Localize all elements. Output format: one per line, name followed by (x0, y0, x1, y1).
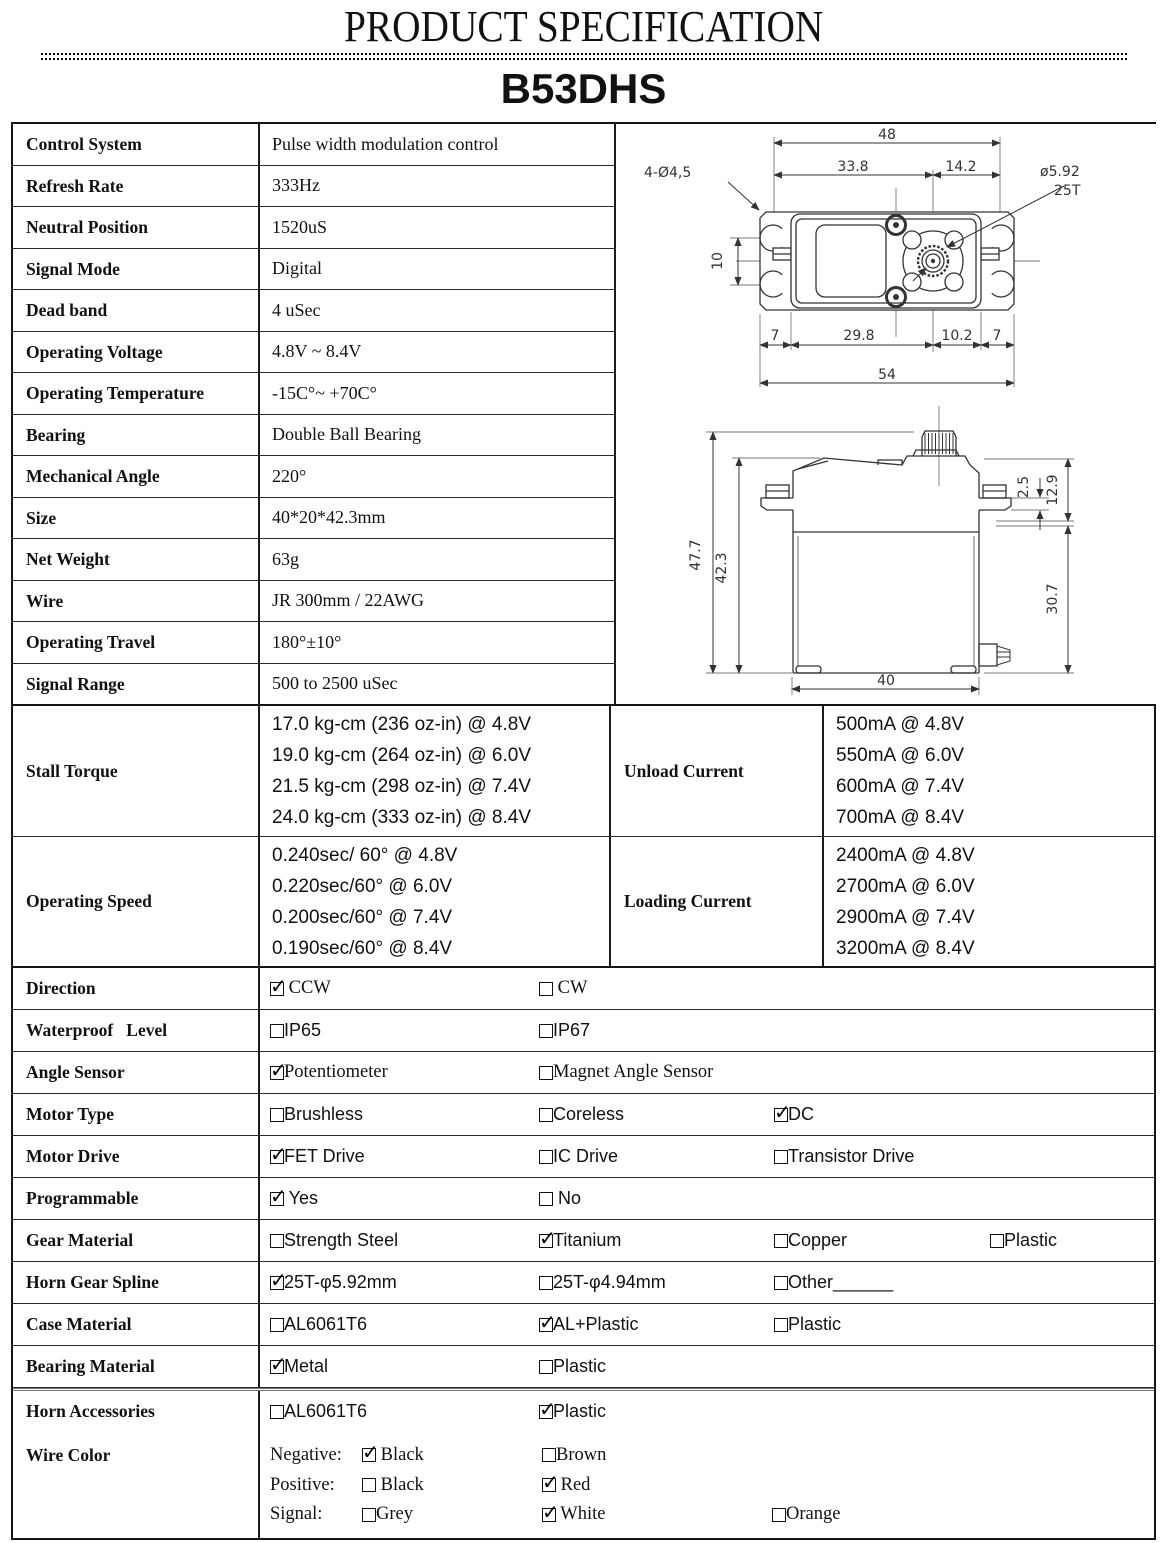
dim-label: 42.3 (714, 552, 730, 583)
operating-speed-label: Operating Speed (13, 837, 260, 966)
value-line: 2400mA @ 4.8V (836, 840, 1154, 871)
spec-row: Operating Voltage4.8V ~ 8.4V (13, 332, 614, 374)
option-label: Coreless (553, 1104, 624, 1125)
option-label: Transistor Drive (788, 1146, 914, 1167)
spec-value: Pulse width modulation control (260, 124, 614, 165)
option-items: FET DriveIC DriveTransistor Drive (260, 1136, 1154, 1177)
operating-speed-values: 0.240sec/ 60° @ 4.8V0.220sec/60° @ 6.0V0… (260, 837, 611, 966)
option-item: Copper (774, 1230, 990, 1251)
spec-label: Dead band (13, 290, 260, 331)
option-item: No (539, 1188, 774, 1209)
option-item: 25T-φ4.94mm (539, 1272, 774, 1293)
dim-label: 54 (878, 367, 896, 383)
spec-value: Double Ball Bearing (260, 415, 614, 456)
option-label: CW (553, 978, 587, 999)
option-label: Other______ (788, 1272, 893, 1293)
option-row: Angle SensorPotentiometerMagnet Angle Se… (13, 1052, 1154, 1094)
option-row: Case MaterialAL6061T6AL+PlasticPlastic (13, 1304, 1154, 1346)
wire-color-line: Signal:Grey WhiteOrange (260, 1504, 1154, 1525)
checkbox-checked-icon (539, 1234, 553, 1248)
option-row-label: Motor Type (13, 1094, 260, 1135)
option-row-label: Angle Sensor (13, 1052, 260, 1093)
dim-label: 33.8 (837, 159, 868, 175)
option-row-label: Gear Material (13, 1220, 260, 1261)
speed-current-row: Operating Speed 0.240sec/ 60° @ 4.8V0.22… (13, 836, 1154, 966)
option-item: 25T-φ5.92mm (270, 1272, 539, 1293)
option-item: AL6061T6 (270, 1314, 539, 1335)
option-label: Potentiometer (284, 1062, 388, 1083)
checkbox-unchecked-icon (270, 1318, 284, 1332)
option-item: Plastic (774, 1314, 990, 1335)
wire-prefix: Positive: (270, 1475, 362, 1496)
value-line: 550mA @ 6.0V (836, 740, 1154, 771)
servo-side-view-drawing: 47.7 42.3 2.5 12.9 30.7 40 (616, 390, 1156, 704)
wire-option-label: Black (376, 1445, 424, 1466)
spec-value: 4.8V ~ 8.4V (260, 332, 614, 373)
checkbox-checked-icon (542, 1478, 556, 1492)
stall-torque-label: Stall Torque (13, 706, 260, 836)
option-item: Plastic (990, 1230, 1154, 1251)
option-label: AL6061T6 (284, 1401, 367, 1422)
header: PRODUCT SPECIFICATION B53DHS (0, 0, 1167, 118)
value-line: 0.190sec/60° @ 8.4V (272, 933, 609, 964)
loading-current-values: 2400mA @ 4.8V2700mA @ 6.0V2900mA @ 7.4V3… (824, 837, 1154, 966)
option-item: Magnet Angle Sensor (539, 1062, 774, 1083)
option-item: FET Drive (270, 1146, 539, 1167)
option-item: Transistor Drive (774, 1146, 990, 1167)
option-row-label: Direction (13, 968, 260, 1009)
spec-value: 1520uS (260, 207, 614, 248)
wire-option-label: Red (556, 1475, 590, 1496)
option-row: Bearing MaterialMetalPlastic (13, 1346, 1154, 1388)
spec-row: Signal Range500 to 2500 uSec (13, 664, 614, 705)
option-item: Plastic (539, 1401, 774, 1422)
general-spec-section: Control SystemPulse width modulation con… (13, 124, 1154, 706)
dim-label: 14.2 (945, 159, 976, 175)
checkbox-checked-icon (270, 982, 284, 996)
checkbox-unchecked-icon (270, 1405, 284, 1419)
spec-value: 180°±10° (260, 622, 614, 663)
value-line: 600mA @ 7.4V (836, 771, 1154, 802)
checkbox-unchecked-icon (539, 1150, 553, 1164)
wire-option: White (542, 1504, 772, 1525)
option-item: AL+Plastic (539, 1314, 774, 1335)
spec-value: -15C°~ +70C° (260, 373, 614, 414)
option-label: FET Drive (284, 1146, 365, 1167)
checkbox-unchecked-icon (774, 1276, 788, 1290)
option-row-label: Horn Accessories (13, 1391, 260, 1432)
option-row: Horn Gear Spline25T-φ5.92mm25T-φ4.94mmOt… (13, 1262, 1154, 1304)
checkbox-checked-icon (270, 1066, 284, 1080)
option-row-label: Waterproof Level (13, 1010, 260, 1051)
option-label: Plastic (1004, 1230, 1057, 1251)
spec-value: Digital (260, 249, 614, 290)
value-line: 2700mA @ 6.0V (836, 871, 1154, 902)
option-item: Strength Steel (270, 1230, 539, 1251)
wire-option-label: Grey (376, 1504, 413, 1525)
option-label: Titanium (553, 1230, 621, 1251)
spec-row: Refresh Rate333Hz (13, 166, 614, 208)
wire-color-label: Wire Color (13, 1432, 260, 1538)
dim-label: 25T (1054, 183, 1081, 199)
option-label: Brushless (284, 1104, 363, 1125)
dim-label: 12.9 (1045, 474, 1061, 505)
option-row: Direction CCW CW (13, 968, 1154, 1010)
option-label: Strength Steel (284, 1230, 398, 1251)
value-line: 3200mA @ 8.4V (836, 933, 1154, 964)
checkbox-checked-icon (270, 1276, 284, 1290)
wire-option-label: White (556, 1504, 606, 1525)
value-line: 19.0 kg-cm (264 oz-in) @ 6.0V (272, 740, 609, 771)
checkbox-unchecked-icon (270, 1234, 284, 1248)
spec-label: Control System (13, 124, 260, 165)
option-item: Plastic (539, 1356, 774, 1377)
option-items: IP65IP67 (260, 1010, 1154, 1051)
checkbox-checked-icon (539, 1405, 553, 1419)
option-items: BrushlessCorelessDC (260, 1094, 1154, 1135)
option-item: IP65 (270, 1020, 539, 1041)
unload-current-values: 500mA @ 4.8V550mA @ 6.0V600mA @ 7.4V700m… (824, 706, 1154, 836)
option-row: Motor TypeBrushlessCorelessDC (13, 1094, 1154, 1136)
checkbox-checked-icon (362, 1448, 376, 1462)
wire-color-section: Wire Color Negative: BlackBrownPositive:… (13, 1432, 1154, 1538)
spec-row: Control SystemPulse width modulation con… (13, 124, 614, 166)
checkbox-checked-icon (270, 1360, 284, 1374)
value-line: 2900mA @ 7.4V (836, 902, 1154, 933)
dim-label: 10.2 (941, 328, 972, 344)
option-item: Metal (270, 1356, 539, 1377)
spec-label: Net Weight (13, 539, 260, 580)
option-label: IC Drive (553, 1146, 618, 1167)
dim-label: 47.7 (688, 539, 704, 570)
option-item: CCW (270, 978, 539, 999)
dimension-drawings: 48 33.8 14.2 4-Ø4,5 ø5.92 25T 10 7 29.8 … (616, 124, 1156, 704)
spec-label: Operating Travel (13, 622, 260, 663)
option-row-label: Motor Drive (13, 1136, 260, 1177)
spec-row: Neutral Position1520uS (13, 207, 614, 249)
checkbox-unchecked-icon (539, 1276, 553, 1290)
wire-option: Red (542, 1475, 772, 1496)
model-number: B53DHS (0, 60, 1167, 118)
wire-option: Orange (772, 1504, 1154, 1525)
checkbox-unchecked-icon (362, 1508, 376, 1522)
spec-label: Operating Voltage (13, 332, 260, 373)
option-label: Metal (284, 1356, 328, 1377)
option-item: Titanium (539, 1230, 774, 1251)
dim-label: ø5.92 (1040, 164, 1080, 180)
option-row-label: Bearing Material (13, 1346, 260, 1387)
dim-label: 7 (993, 328, 1002, 344)
option-label: Plastic (553, 1356, 606, 1377)
loading-current-label: Loading Current (611, 837, 824, 966)
checkbox-unchecked-icon (270, 1108, 284, 1122)
value-line: 21.5 kg-cm (298 oz-in) @ 7.4V (272, 771, 609, 802)
checkbox-unchecked-icon (542, 1448, 556, 1462)
spec-rows: Control SystemPulse width modulation con… (13, 124, 616, 704)
spec-label: Size (13, 498, 260, 539)
dim-label: 4-Ø4,5 (644, 165, 691, 181)
option-items: PotentiometerMagnet Angle Sensor (260, 1052, 1154, 1093)
spec-value: 500 to 2500 uSec (260, 664, 614, 705)
option-label: Plastic (788, 1314, 841, 1335)
spec-label: Mechanical Angle (13, 456, 260, 497)
option-label: 25T-φ4.94mm (553, 1272, 666, 1293)
option-label: IP67 (553, 1020, 590, 1041)
dim-label: 10 (710, 252, 726, 270)
option-row: Gear MaterialStrength SteelTitaniumCoppe… (13, 1220, 1154, 1262)
checkbox-unchecked-icon (774, 1318, 788, 1332)
value-line: 17.0 kg-cm (236 oz-in) @ 4.8V (272, 709, 609, 740)
option-items: MetalPlastic (260, 1346, 1154, 1387)
spec-row: Signal ModeDigital (13, 249, 614, 291)
title-divider (41, 53, 1127, 60)
option-row: Horn AccessoriesAL6061T6Plastic (13, 1388, 1154, 1432)
checkbox-checked-icon (270, 1192, 284, 1206)
option-row-label: Case Material (13, 1304, 260, 1345)
spec-label: Bearing (13, 415, 260, 456)
option-item: IC Drive (539, 1146, 774, 1167)
option-label: Plastic (553, 1401, 606, 1422)
spec-row: Mechanical Angle220° (13, 456, 614, 498)
value-line: 700mA @ 8.4V (836, 802, 1154, 833)
spec-row: Operating Travel180°±10° (13, 622, 614, 664)
option-label: No (553, 1188, 581, 1209)
option-item: Coreless (539, 1104, 774, 1125)
dim-label: 30.7 (1045, 583, 1061, 614)
option-item: AL6061T6 (270, 1401, 539, 1422)
checkbox-unchecked-icon (539, 1108, 553, 1122)
option-items: 25T-φ5.92mm25T-φ4.94mmOther______ (260, 1262, 1154, 1303)
value-line: 500mA @ 4.8V (836, 709, 1154, 740)
option-items: AL6061T6Plastic (260, 1391, 1154, 1432)
spec-row: Operating Temperature-15C°~ +70C° (13, 373, 614, 415)
dim-label: 2.5 (1016, 476, 1032, 498)
option-label: Copper (788, 1230, 847, 1251)
servo-top-view-drawing: 48 33.8 14.2 4-Ø4,5 ø5.92 25T 10 7 29.8 … (616, 124, 1156, 390)
option-label: Yes (284, 1188, 318, 1209)
checkbox-unchecked-icon (774, 1234, 788, 1248)
spec-value: 40*20*42.3mm (260, 498, 614, 539)
wire-color-line: Positive: Black Red (260, 1475, 1154, 1496)
option-row: Waterproof LevelIP65IP67 (13, 1010, 1154, 1052)
wire-option: Brown (542, 1445, 772, 1466)
wire-prefix: Signal: (270, 1504, 362, 1525)
value-line: 0.200sec/60° @ 7.4V (272, 902, 609, 933)
option-label: CCW (284, 978, 331, 999)
option-row: Programmable Yes No (13, 1178, 1154, 1220)
dim-label: 7 (771, 328, 780, 344)
option-item: CW (539, 978, 774, 999)
option-item: Other______ (774, 1272, 990, 1293)
unload-current-label: Unload Current (611, 706, 824, 836)
checkbox-checked-icon (542, 1508, 556, 1522)
spec-label: Wire (13, 581, 260, 622)
spec-label: Refresh Rate (13, 166, 260, 207)
spec-label: Operating Temperature (13, 373, 260, 414)
performance-section: Stall Torque 17.0 kg-cm (236 oz-in) @ 4.… (13, 706, 1154, 968)
option-items: AL6061T6AL+PlasticPlastic (260, 1304, 1154, 1345)
option-rows-section: Direction CCW CWWaterproof LevelIP65IP67… (13, 968, 1154, 1432)
stall-torque-values: 17.0 kg-cm (236 oz-in) @ 4.8V19.0 kg-cm … (260, 706, 611, 836)
wire-prefix: Negative: (270, 1445, 362, 1466)
checkbox-checked-icon (539, 1318, 553, 1332)
option-label: 25T-φ5.92mm (284, 1272, 397, 1293)
option-row: Motor DriveFET DriveIC DriveTransistor D… (13, 1136, 1154, 1178)
checkbox-unchecked-icon (774, 1150, 788, 1164)
value-line: 0.240sec/ 60° @ 4.8V (272, 840, 609, 871)
option-label: Magnet Angle Sensor (553, 1062, 713, 1083)
checkbox-checked-icon (774, 1108, 788, 1122)
checkbox-unchecked-icon (539, 1066, 553, 1080)
value-line: 0.220sec/60° @ 6.0V (272, 871, 609, 902)
spec-row: Net Weight63g (13, 539, 614, 581)
torque-current-row: Stall Torque 17.0 kg-cm (236 oz-in) @ 4.… (13, 706, 1154, 836)
option-item: DC (774, 1104, 990, 1125)
spec-label: Signal Range (13, 664, 260, 705)
wire-option-label: Orange (786, 1504, 840, 1525)
checkbox-unchecked-icon (539, 1024, 553, 1038)
dim-label: 40 (877, 673, 895, 689)
spec-value: 4 uSec (260, 290, 614, 331)
spec-row: Dead band4 uSec (13, 290, 614, 332)
spec-row: BearingDouble Ball Bearing (13, 415, 614, 457)
dim-label: 48 (878, 127, 896, 143)
option-label: AL6061T6 (284, 1314, 367, 1335)
wire-option-label: Brown (556, 1445, 606, 1466)
spec-row: Size40*20*42.3mm (13, 498, 614, 540)
option-item: IP67 (539, 1020, 774, 1041)
option-label: AL+Plastic (553, 1314, 639, 1335)
option-row-label: Horn Gear Spline (13, 1262, 260, 1303)
spec-label: Signal Mode (13, 249, 260, 290)
checkbox-unchecked-icon (362, 1478, 376, 1492)
spec-value: 63g (260, 539, 614, 580)
dim-label: 29.8 (843, 328, 874, 344)
option-row-label: Programmable (13, 1178, 260, 1219)
wire-color-line: Negative: BlackBrown (260, 1445, 1154, 1466)
page-title: PRODUCT SPECIFICATION (344, 0, 823, 52)
wire-option-label: Black (376, 1475, 424, 1496)
wire-option: Black (362, 1475, 542, 1496)
option-item: Potentiometer (270, 1062, 539, 1083)
value-line: 24.0 kg-cm (333 oz-in) @ 8.4V (272, 802, 609, 833)
option-label: IP65 (284, 1020, 321, 1041)
option-item: Yes (270, 1188, 539, 1209)
option-items: CCW CW (260, 968, 1154, 1009)
checkbox-unchecked-icon (990, 1234, 1004, 1248)
wire-option: Black (362, 1445, 542, 1466)
wire-color-lines: Negative: BlackBrownPositive: Black RedS… (260, 1432, 1154, 1538)
spec-value: JR 300mm / 22AWG (260, 581, 614, 622)
spec-value: 333Hz (260, 166, 614, 207)
checkbox-checked-icon (270, 1150, 284, 1164)
spec-row: WireJR 300mm / 22AWG (13, 581, 614, 623)
wire-option: Grey (362, 1504, 542, 1525)
option-items: Yes No (260, 1178, 1154, 1219)
option-items: Strength SteelTitaniumCopperPlastic (260, 1220, 1154, 1261)
checkbox-unchecked-icon (539, 982, 553, 996)
spec-sheet-page: PRODUCT SPECIFICATION B53DHS Control Sys… (0, 0, 1167, 1543)
checkbox-unchecked-icon (270, 1024, 284, 1038)
option-item: Brushless (270, 1104, 539, 1125)
checkbox-unchecked-icon (772, 1508, 786, 1522)
checkbox-unchecked-icon (539, 1360, 553, 1374)
spec-label: Neutral Position (13, 207, 260, 248)
checkbox-unchecked-icon (539, 1192, 553, 1206)
specification-table: Control SystemPulse width modulation con… (11, 122, 1156, 1540)
spec-value: 220° (260, 456, 614, 497)
option-label: DC (788, 1104, 814, 1125)
